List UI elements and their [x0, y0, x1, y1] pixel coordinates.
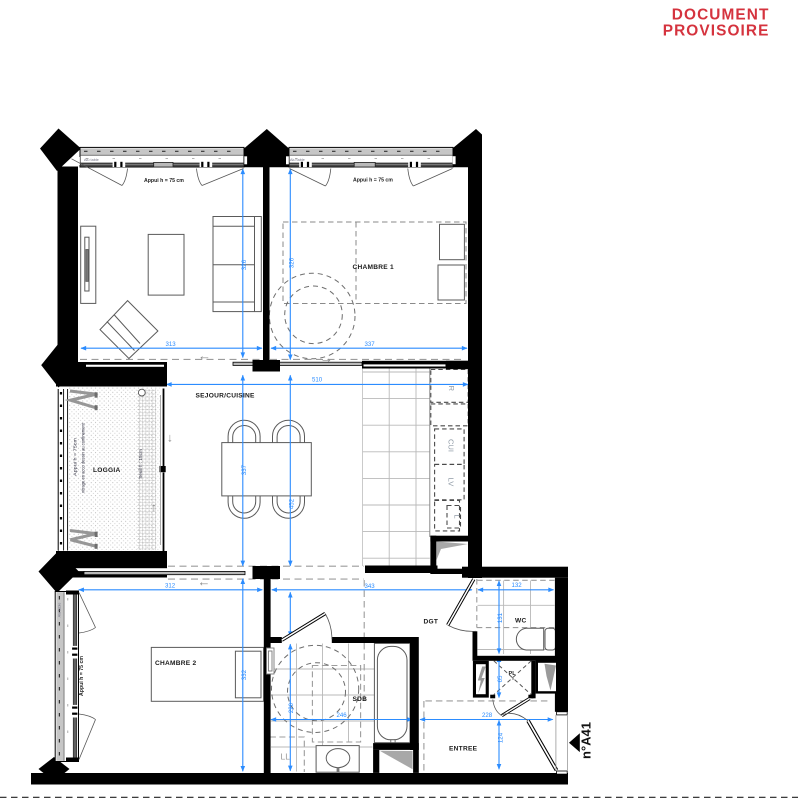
svg-text:R: R [447, 385, 456, 391]
svg-text:Appui h = 75 cm: Appui h = 75 cm [144, 178, 184, 184]
svg-text:Appui h = 75 cm: Appui h = 75 cm [79, 656, 85, 696]
svg-text:452: 452 [288, 498, 295, 509]
svg-text:228: 228 [482, 712, 493, 719]
svg-text:n°A41: n°A41 [579, 722, 594, 759]
svg-text:65: 65 [497, 675, 504, 682]
svg-text:DOCUMENT: DOCUMENT [672, 6, 770, 23]
svg-text:313: 313 [166, 341, 177, 348]
svg-text:SDB: SDB [353, 696, 368, 703]
svg-text:CHAMBRE 2: CHAMBRE 2 [155, 660, 197, 667]
svg-text:510: 510 [312, 377, 323, 384]
svg-text:LOGGIA: LOGGIA [93, 467, 121, 474]
svg-text:326: 326 [241, 259, 248, 270]
svg-text:L: L [453, 514, 462, 518]
svg-text:←: ← [198, 574, 211, 589]
svg-text:LV: LV [447, 478, 456, 488]
svg-text:Appui h = 75 cm: Appui h = 75 cm [353, 178, 393, 184]
svg-text:Alu table: Alu table [290, 158, 305, 162]
svg-text:220: 220 [288, 702, 295, 713]
svg-text:246: 246 [337, 712, 348, 719]
svg-text:WC: WC [515, 618, 527, 625]
svg-text:↑: ↑ [151, 500, 157, 514]
svg-text:Alu table: Alu table [84, 158, 99, 162]
svg-text:124: 124 [497, 732, 504, 743]
svg-text:CHAMBRE 1: CHAMBRE 1 [353, 264, 395, 271]
svg-text:LL: LL [281, 752, 291, 762]
svg-text:332: 332 [241, 669, 248, 680]
svg-text:ENTREE: ENTREE [449, 745, 478, 752]
svg-text:↓: ↓ [167, 431, 173, 445]
svg-text:337: 337 [241, 464, 248, 475]
svg-text:SEJOUR/CUISINE: SEJOUR/CUISINE [196, 392, 256, 399]
svg-text:←: ← [198, 348, 211, 363]
svg-text:337: 337 [365, 341, 376, 348]
svg-text:CUI: CUI [447, 439, 456, 452]
svg-text:132: 132 [512, 582, 523, 589]
svg-text:Seuil h : 15cm: Seuil h : 15cm [138, 449, 143, 479]
svg-text:h: h [512, 676, 514, 681]
svg-text:vitrage en acco dessin au conf: vitrage en acco dessin au confinement [81, 422, 86, 493]
svg-text:PROVISOIRE: PROVISOIRE [663, 23, 770, 40]
svg-text:343: 343 [365, 583, 376, 590]
svg-text:DGT: DGT [424, 618, 439, 625]
svg-text:Appui h = 75cm: Appui h = 75cm [73, 438, 78, 476]
svg-text:312: 312 [165, 582, 176, 589]
svg-text:Alu table: Alu table [58, 603, 62, 618]
svg-text:131: 131 [497, 612, 504, 623]
svg-text:326: 326 [288, 257, 295, 268]
